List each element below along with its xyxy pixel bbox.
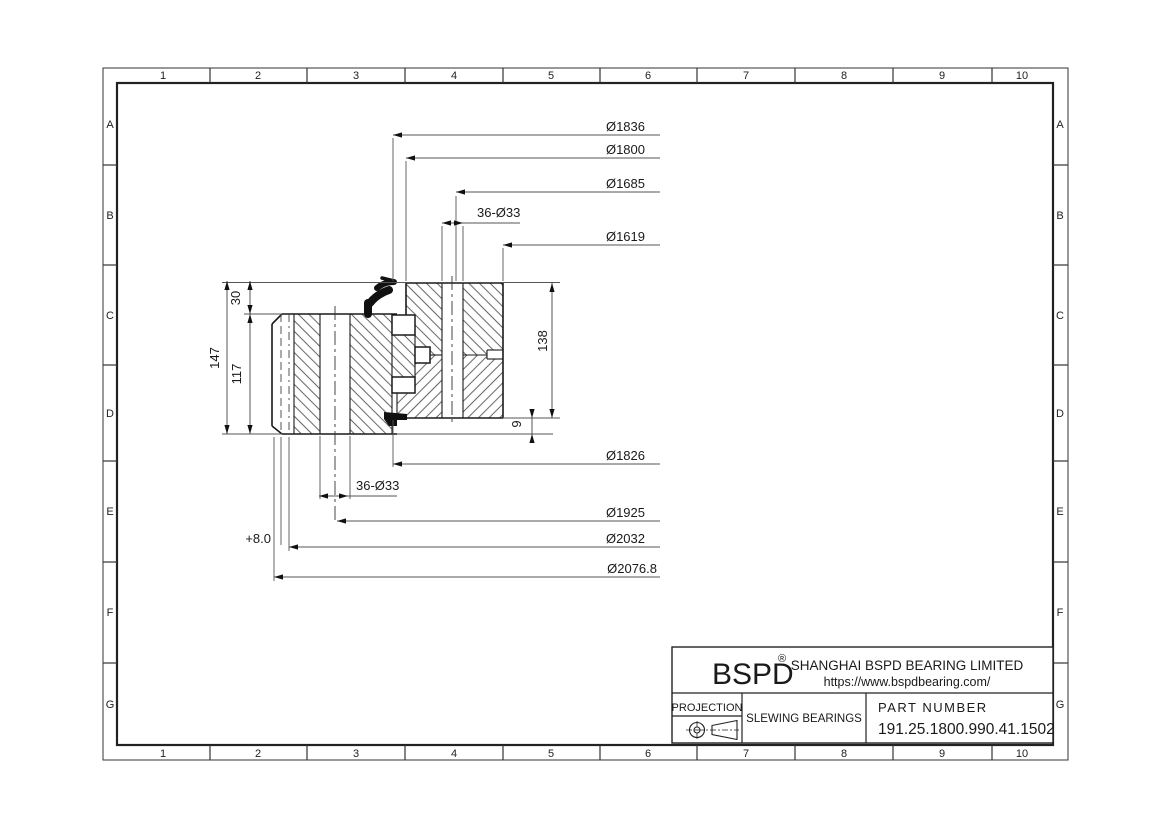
title-block: BSPD ® SHANGHAI BSPD BEARING LIMITED htt… [672,647,1055,743]
grid-row-left-g: G [106,699,115,711]
dim-label-h138: 138 [535,330,550,352]
grid-col-bottom-3: 3 [353,748,359,760]
dim-label-h30: 30 [228,291,243,305]
grid-row-left-e: E [106,506,113,518]
dim-label-d1685: Ø1685 [606,176,645,191]
grid-col-top-1: 1 [160,70,166,82]
drawing-sheet: 1 2 3 4 5 6 7 8 9 10 1 2 3 4 5 6 7 8 9 1… [0,0,1170,827]
grid-col-top-3: 3 [353,70,359,82]
grid-row-left-a: A [106,119,114,131]
grid-col-top-4: 4 [451,70,457,82]
grid-col-bottom-9: 9 [939,748,945,760]
dim-label-d1925: Ø1925 [606,505,645,520]
upper-axial-roller [392,315,415,335]
grid-col-top-2: 2 [255,70,261,82]
grid-row-right-f: F [1057,607,1064,619]
registered-trademark-icon: ® [778,653,786,665]
grid-col-top-10: 10 [1016,70,1028,82]
grid-col-top-7: 7 [743,70,749,82]
grid-col-bottom-5: 5 [548,748,554,760]
grid-col-top-9: 9 [939,70,945,82]
gear-top-chamfer [272,314,282,324]
engineering-drawing: 1 2 3 4 5 6 7 8 9 10 1 2 3 4 5 6 7 8 9 1… [0,0,1170,827]
dim-label-bolt-bottom: 36-Ø33 [356,478,399,493]
lower-axial-roller [392,377,415,393]
top-seal [368,278,394,314]
grid-col-bottom-8: 8 [841,748,847,760]
grid-row-left-f: F [107,607,114,619]
dim-label-d1836: Ø1836 [606,119,645,134]
dim-label-d1619: Ø1619 [606,229,645,244]
dim-label-d2032: Ø2032 [606,531,645,546]
grid-col-bottom-10: 10 [1016,748,1028,760]
radial-roller [415,347,430,363]
grid-col-bottom-1: 1 [160,748,166,760]
dim-label-d1826: Ø1826 [606,448,645,463]
grid-row-left-c: C [106,310,114,322]
dim-label-d2076: Ø2076.8 [607,561,657,576]
company-name: SHANGHAI BSPD BEARING LIMITED [791,658,1024,673]
grid-row-right-c: C [1056,310,1064,322]
grid-row-right-g: G [1056,699,1065,711]
grid-col-bottom-6: 6 [645,748,651,760]
dim-label-gear-shift: +8.0 [245,531,271,546]
grid-row-right-a: A [1056,119,1064,131]
grid-col-top-5: 5 [548,70,554,82]
dim-label-bolt-top: 36-Ø33 [477,205,520,220]
grid-col-top-6: 6 [645,70,651,82]
grid-col-bottom-2: 2 [255,748,261,760]
part-number-label: PART NUMBER [878,700,988,715]
dim-label-h117: 117 [229,364,244,385]
gear-bottom-chamfer [272,426,282,434]
grid-col-bottom-4: 4 [451,748,457,760]
inner-ring-bolt-hole-upper [442,283,463,355]
product-type: SLEWING BEARINGS [746,713,862,725]
part-number-value: 191.25.1800.990.41.1502 [878,721,1055,738]
grid-row-right-d: D [1056,408,1064,420]
dim-label-h147: 147 [207,347,222,369]
grid-row-left-d: D [106,408,114,420]
projection-label: PROJECTION [672,702,743,714]
grid-row-right-e: E [1056,506,1063,518]
grid-col-top-8: 8 [841,70,847,82]
dim-label-d1800: Ø1800 [606,142,645,157]
grid-row-left-b: B [106,210,113,222]
company-website: https://www.bspdbearing.com/ [824,675,991,689]
grid-col-bottom-7: 7 [743,748,749,760]
dim-label-h9: 9 [509,420,524,427]
grid-row-right-b: B [1056,210,1063,222]
inner-ring-bolt-hole-lower [442,355,463,418]
